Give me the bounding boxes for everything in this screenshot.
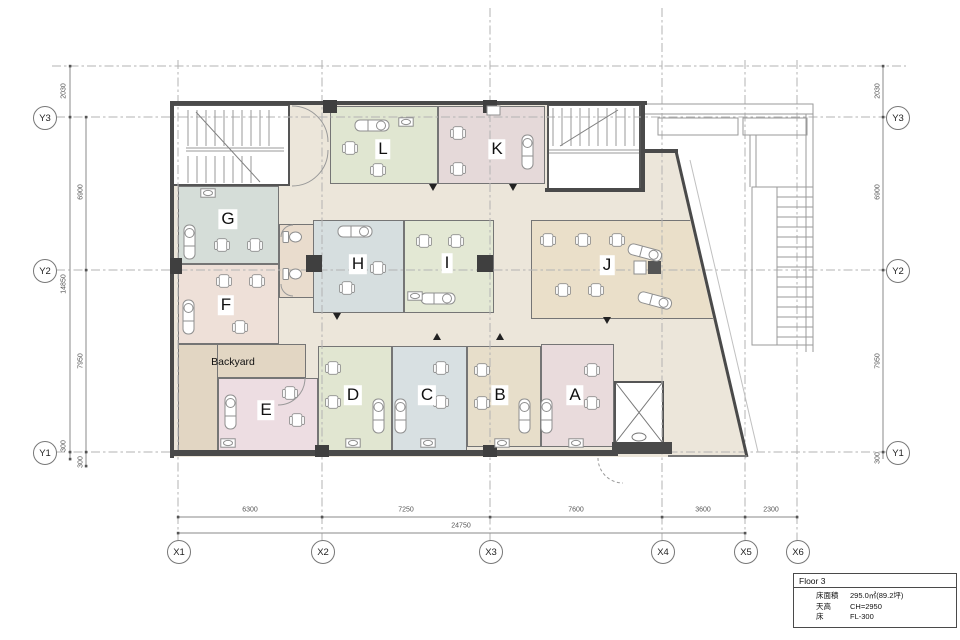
grid-bubble-y3-right: Y3 xyxy=(886,106,910,130)
room-label-K: K xyxy=(488,139,505,159)
room-label-L: L xyxy=(375,139,390,159)
room-label-I: I xyxy=(442,253,453,273)
exterior-stair xyxy=(752,187,813,345)
title-block-floor-name: Floor 3 xyxy=(794,574,956,588)
grid-bubble-x2: X2 xyxy=(311,540,335,564)
grid-bubble-x1: X1 xyxy=(167,540,191,564)
grid-bubble-y1-right: Y1 xyxy=(886,441,910,465)
area-label: 床面積 xyxy=(816,591,850,602)
plan-linework xyxy=(0,0,960,640)
dim-bottom-3600: 3600 xyxy=(681,507,725,514)
area-value: 295.0㎡(89.2坪) xyxy=(850,591,903,602)
grid-bubble-y2-left: Y2 xyxy=(33,259,57,283)
floor-label: 床 xyxy=(816,612,850,623)
entrance-swing-dashed xyxy=(598,458,623,483)
title-block-row-ceiling: 天高 CH=2950 xyxy=(816,602,952,613)
room-label-D: D xyxy=(344,385,362,405)
room-label-E: E xyxy=(257,400,274,420)
dim-left-2030: 2030 xyxy=(61,69,68,113)
room-label-A: A xyxy=(566,385,583,405)
room-label-J: J xyxy=(600,255,615,275)
grid-bubble-x5: X5 xyxy=(734,540,758,564)
dim-right-300: 300 xyxy=(875,436,882,480)
styling-chair-icon xyxy=(184,225,195,259)
elevator-cross-icon xyxy=(616,383,662,442)
dim-left-300a: 300 xyxy=(61,424,68,468)
dim-right-2030: 2030 xyxy=(875,69,882,113)
diagonal-wall xyxy=(676,151,747,457)
floor-value: FL-300 xyxy=(850,612,874,623)
dim-left-300b: 300 xyxy=(78,440,85,484)
room-label-F: F xyxy=(218,295,234,315)
ceiling-value: CH=2950 xyxy=(850,602,882,613)
room-label-C: C xyxy=(418,385,436,405)
dim-bottom-6300: 6300 xyxy=(228,507,272,514)
grid-lines xyxy=(52,8,906,558)
grid-bubble-y1-left: Y1 xyxy=(33,441,57,465)
ceiling-label: 天高 xyxy=(816,602,850,613)
dim-bottom-2300: 2300 xyxy=(749,507,793,514)
dim-left-14850: 14850 xyxy=(61,262,68,306)
dim-left-7950: 7950 xyxy=(78,339,85,383)
title-block-row-floor: 床 FL-300 xyxy=(816,612,952,623)
exterior-structures xyxy=(643,104,813,452)
grid-bubble-x4: X4 xyxy=(651,540,675,564)
dim-right-6900: 6900 xyxy=(875,170,882,214)
grid-bubble-x3: X3 xyxy=(479,540,503,564)
grid-bubble-x6: X6 xyxy=(786,540,810,564)
dim-bottom-7600: 7600 xyxy=(554,507,598,514)
dim-bottom-7250: 7250 xyxy=(384,507,428,514)
dim-left-6900: 6900 xyxy=(78,170,85,214)
grid-bubble-y2-right: Y2 xyxy=(886,259,910,283)
stair-treads-left xyxy=(186,110,284,183)
room-label-G: G xyxy=(218,209,237,229)
room-label-B: B xyxy=(491,385,508,405)
grid-bubble-y3-left: Y3 xyxy=(33,106,57,130)
room-label-backyard: Backyard xyxy=(211,356,255,368)
dim-right-7950: 7950 xyxy=(875,339,882,383)
toilet-icon xyxy=(283,232,302,243)
dim-bottom-total-24750: 24750 xyxy=(439,523,483,530)
room-label-H: H xyxy=(349,254,367,274)
title-block: Floor 3 床面積 295.0㎡(89.2坪) 天高 CH=2950 床 F… xyxy=(793,573,957,628)
stair-treads-right xyxy=(549,108,639,153)
floor-plan-sheet: L K G F H I J Backyard E D C B A Y3 Y2 Y… xyxy=(0,0,960,640)
title-block-row-area: 床面積 295.0㎡(89.2坪) xyxy=(816,591,952,602)
